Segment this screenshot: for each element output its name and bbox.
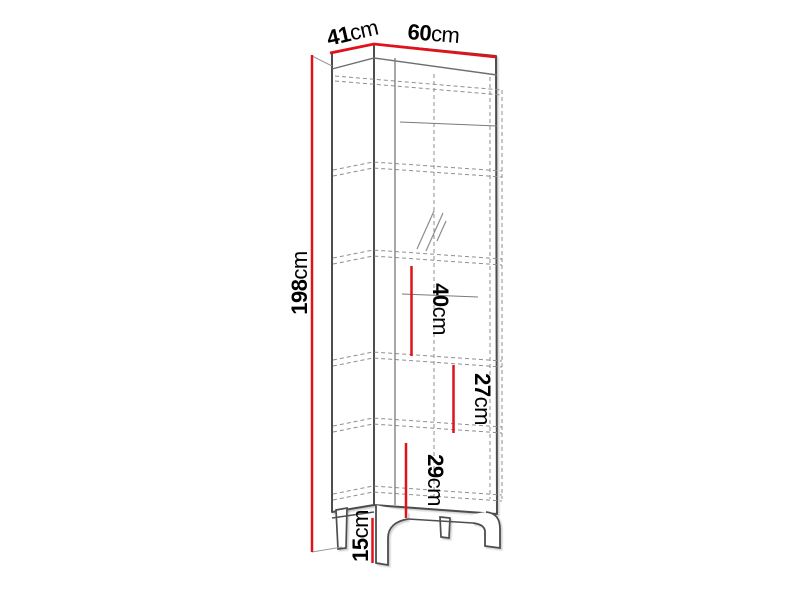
cabinet-drawing: 41cm 60cm 198cm 40cm 27cm 29cm 15cm	[0, 0, 800, 600]
label-width: 60cm	[407, 19, 461, 48]
label-leg: 15cm	[348, 510, 373, 562]
height-witness-top	[312, 56, 332, 66]
label-gap-lower: 29cm	[423, 454, 448, 506]
label-gap-upper: 40cm	[428, 283, 453, 335]
leg-front-left-fill	[376, 505, 408, 565]
leg-back-left	[336, 508, 347, 549]
cabinet-body	[332, 44, 497, 514]
leg-back-right	[440, 517, 450, 538]
label-height: 198cm	[287, 251, 312, 315]
dimension-diagram: 41cm 60cm 198cm 40cm 27cm 29cm 15cm	[0, 0, 800, 600]
cabinet-side-face	[332, 44, 374, 512]
cabinet-front-face	[374, 44, 497, 514]
label-gap-middle: 27cm	[470, 373, 495, 425]
